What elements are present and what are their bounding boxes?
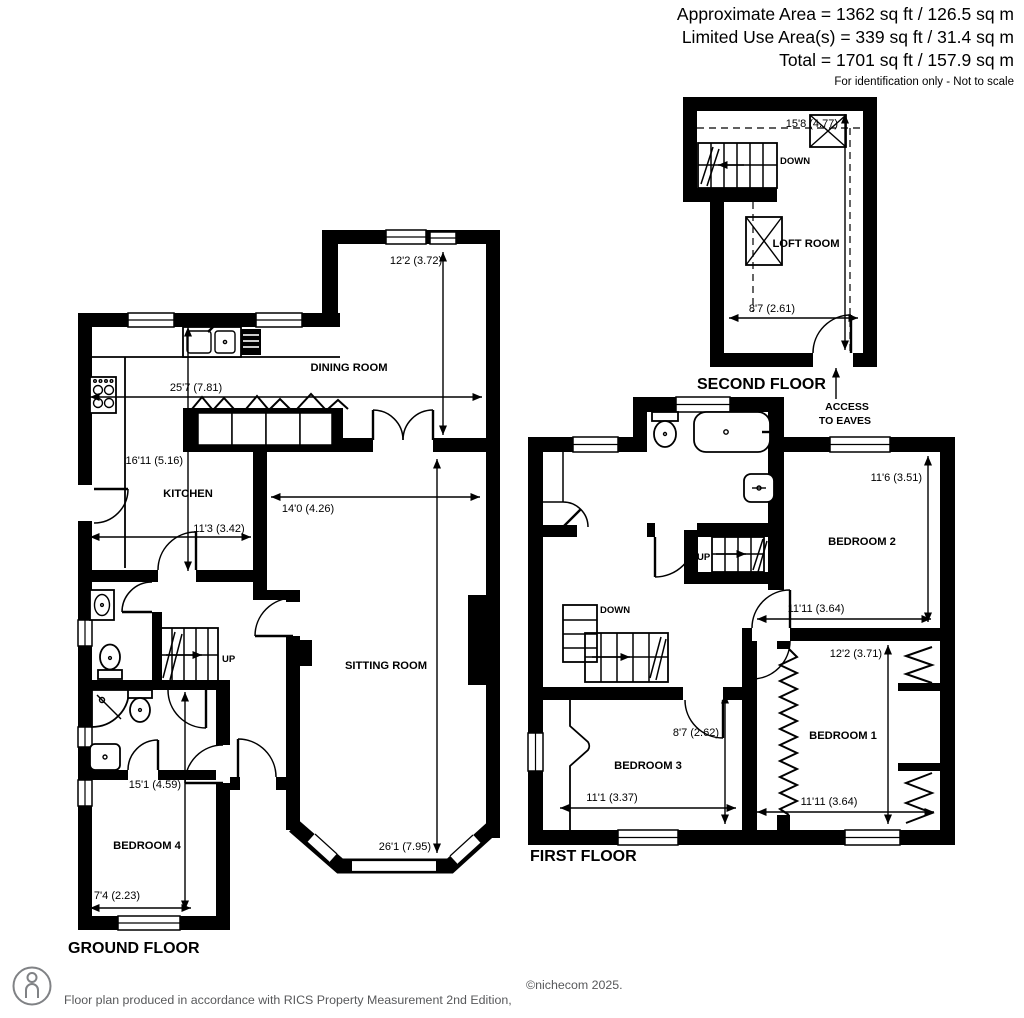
dim-kitchen-width: 11'3 (3.42): [193, 523, 244, 535]
ground-floor-title: GROUND FLOOR: [68, 940, 200, 957]
stairs-up-label-ground: UP: [222, 654, 236, 665]
first-floor-title: FIRST FLOOR: [530, 848, 637, 865]
access-to-eaves-line1: ACCESS: [825, 401, 869, 413]
dim-bedroom4-width: 7'4 (2.23): [94, 890, 140, 902]
room-label-loft: LOFT ROOM: [772, 238, 839, 250]
first-stairs-up: [712, 537, 767, 572]
bifold-doors: [183, 394, 348, 452]
ground-floor-plan: 12'2 (3.72) 25'7 (7.81) 16'11 (5.16) 11'…: [68, 230, 500, 957]
dim-bedroom3-width: 11'1 (3.37): [586, 792, 637, 804]
room-label-sitting: SITTING ROOM: [345, 660, 427, 672]
stairs-down-label-second: DOWN: [780, 156, 810, 167]
copyright-text: ©nichecom 2025.: [526, 978, 623, 992]
first-bathroom-fixtures: [652, 412, 774, 502]
dim-bedroom1-length: 12'2 (3.71): [830, 648, 882, 660]
dim-bedroom2-length: 11'6 (3.51): [871, 472, 922, 484]
dim-bedroom4-length: 15'1 (4.59): [129, 779, 181, 791]
ground-bathroom-fixtures: [90, 690, 152, 770]
first-interior-walls: [542, 523, 941, 830]
room-label-bedroom4: BEDROOM 4: [113, 840, 182, 852]
dim-kitchen-length: 16'11 (5.16): [125, 455, 183, 467]
stairs-up-label-first: UP: [697, 552, 711, 563]
nichecom-logo-icon: [10, 964, 54, 1008]
dining-double-doors: [373, 410, 433, 440]
first-floor-plan: 11'6 (3.51) 11'11 (3.64) 12'2 (3.71) 11'…: [528, 397, 955, 865]
room-label-dining: DINING ROOM: [310, 362, 387, 374]
landing-cupboard: [543, 452, 563, 502]
dim-loft-length: 15'8 (4.77): [786, 118, 838, 130]
stairs-down-label-first: DOWN: [600, 605, 630, 616]
ground-stairs-up: [160, 628, 218, 682]
disclaimer-line1: Floor plan produced in accordance with R…: [64, 993, 514, 1009]
room-label-bedroom1: BEDROOM 1: [809, 730, 877, 742]
room-label-kitchen: KITCHEN: [163, 488, 213, 500]
dim-dining-width: 12'2 (3.72): [390, 255, 442, 267]
dim-bedroom1-width: 11'11 (3.64): [801, 796, 858, 808]
second-floor-plan: 15'8 (4.77) 8'7 (2.61) LOFT ROOM DOWN AC…: [683, 97, 877, 427]
disclaimer-text: Floor plan produced in accordance with R…: [64, 962, 514, 1018]
room-label-bedroom3: BEDROOM 3: [614, 760, 682, 772]
first-stairs-down: [563, 605, 668, 682]
second-floor-title: SECOND FLOOR: [697, 376, 826, 393]
dim-loft-width: 8'7 (2.61): [749, 303, 795, 315]
floorplan-page: Approximate Area = 1362 sq ft / 126.5 sq…: [0, 0, 1024, 1018]
first-exterior-walls: [528, 397, 955, 845]
dim-bedroom3-length: 8'7 (2.62): [673, 727, 719, 739]
second-stairs-down: [698, 143, 777, 188]
footer-disclaimer: Floor plan produced in accordance with R…: [8, 960, 1018, 1016]
kitchen-sink: [183, 324, 261, 357]
first-windows: [528, 397, 900, 845]
dim-overall-width: 25'7 (7.81): [170, 382, 222, 394]
dim-bedroom2-width: 11'11 (3.64): [788, 603, 845, 615]
room-label-bedroom2: BEDROOM 2: [828, 536, 896, 548]
dim-sitting-width: 14'0 (4.26): [282, 503, 334, 515]
bedroom3-chimney: [570, 700, 589, 830]
wc-fixtures: [90, 590, 122, 679]
floorplan-drawing: 12'2 (3.72) 25'7 (7.81) 16'11 (5.16) 11'…: [0, 0, 1024, 1018]
dim-sitting-length: 26'1 (7.95): [379, 841, 431, 853]
access-to-eaves-line2: TO EAVES: [819, 415, 871, 427]
kitchen-hob: [90, 377, 116, 413]
